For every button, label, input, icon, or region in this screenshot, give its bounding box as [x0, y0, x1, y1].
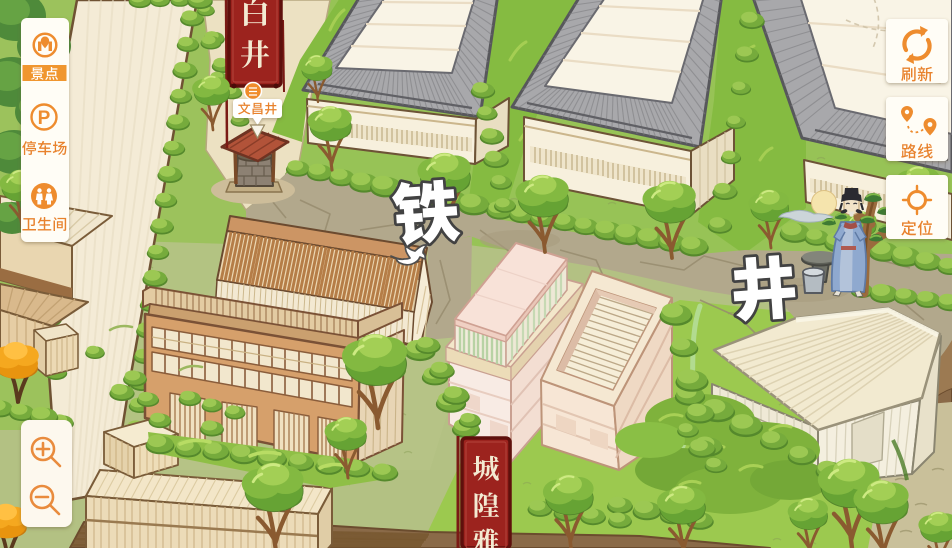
svg-text:P: P — [38, 108, 51, 129]
